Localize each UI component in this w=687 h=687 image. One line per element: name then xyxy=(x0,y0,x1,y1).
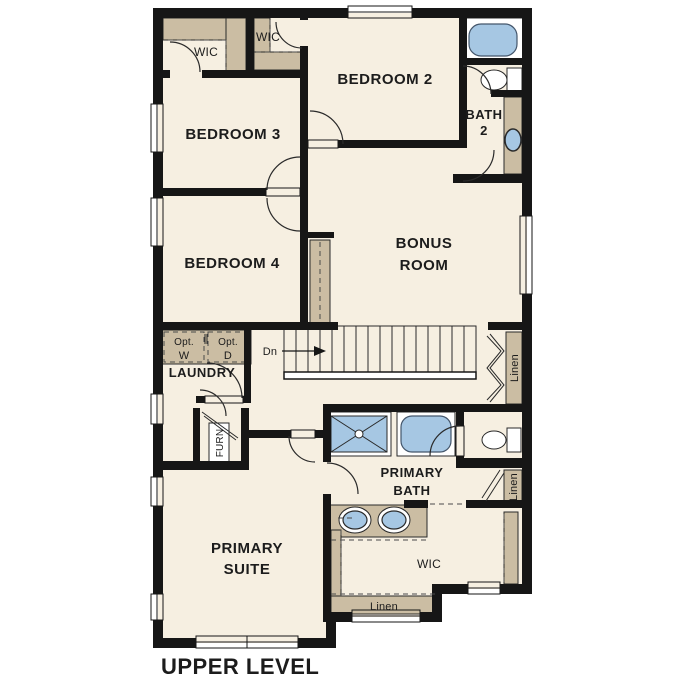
linen-wic-label: Linen xyxy=(370,601,398,613)
floor-plan: BEDROOM 3 BEDROOM 2 BEDROOM 4 BONUS ROOM… xyxy=(0,0,687,687)
floor-plan-page: BEDROOM 3 BEDROOM 2 BEDROOM 4 BONUS ROOM… xyxy=(0,0,687,687)
bedroom4-label: BEDROOM 4 xyxy=(184,255,280,272)
wic-bedroom3-label: WIC xyxy=(194,45,218,59)
primary-bath-label: BATH xyxy=(393,483,430,498)
opt-dryer-label: Opt. xyxy=(218,337,238,348)
furnace-label: FURN xyxy=(215,429,226,458)
sink-icon xyxy=(339,507,371,533)
bathtub-icon xyxy=(463,18,523,62)
opt-washer-label: W xyxy=(179,350,190,362)
sink-icon xyxy=(505,129,521,151)
stair-railing xyxy=(284,372,476,379)
wic-primary-label: WIC xyxy=(417,557,441,571)
sink-icon xyxy=(378,507,410,533)
opt-washer-label: Opt. xyxy=(174,337,194,348)
linen-upper-label: Linen xyxy=(509,354,521,382)
page-title: UPPER LEVEL xyxy=(161,654,319,679)
bonus-room-label: ROOM xyxy=(400,257,449,274)
bonus-room-label: BONUS xyxy=(396,235,453,252)
primary-suite-label: SUITE xyxy=(224,561,271,578)
opt-dryer-label: D xyxy=(224,350,232,362)
primary-bath-label: PRIMARY xyxy=(381,465,444,480)
bath2-label: BATH xyxy=(465,107,502,122)
wic-bedroom2-label: WIC xyxy=(256,30,280,44)
primary-suite-label: PRIMARY xyxy=(211,540,283,557)
bedroom3-label: BEDROOM 3 xyxy=(185,126,280,143)
bath2-label: 2 xyxy=(480,123,488,138)
bathtub-icon xyxy=(397,412,455,456)
laundry-label: LAUNDRY xyxy=(169,365,236,380)
shower-icon xyxy=(327,412,391,456)
linen-lower-label: Linen xyxy=(508,473,520,501)
stairs-down-label: Dn xyxy=(263,346,277,358)
bedroom2-label: BEDROOM 2 xyxy=(337,71,432,88)
